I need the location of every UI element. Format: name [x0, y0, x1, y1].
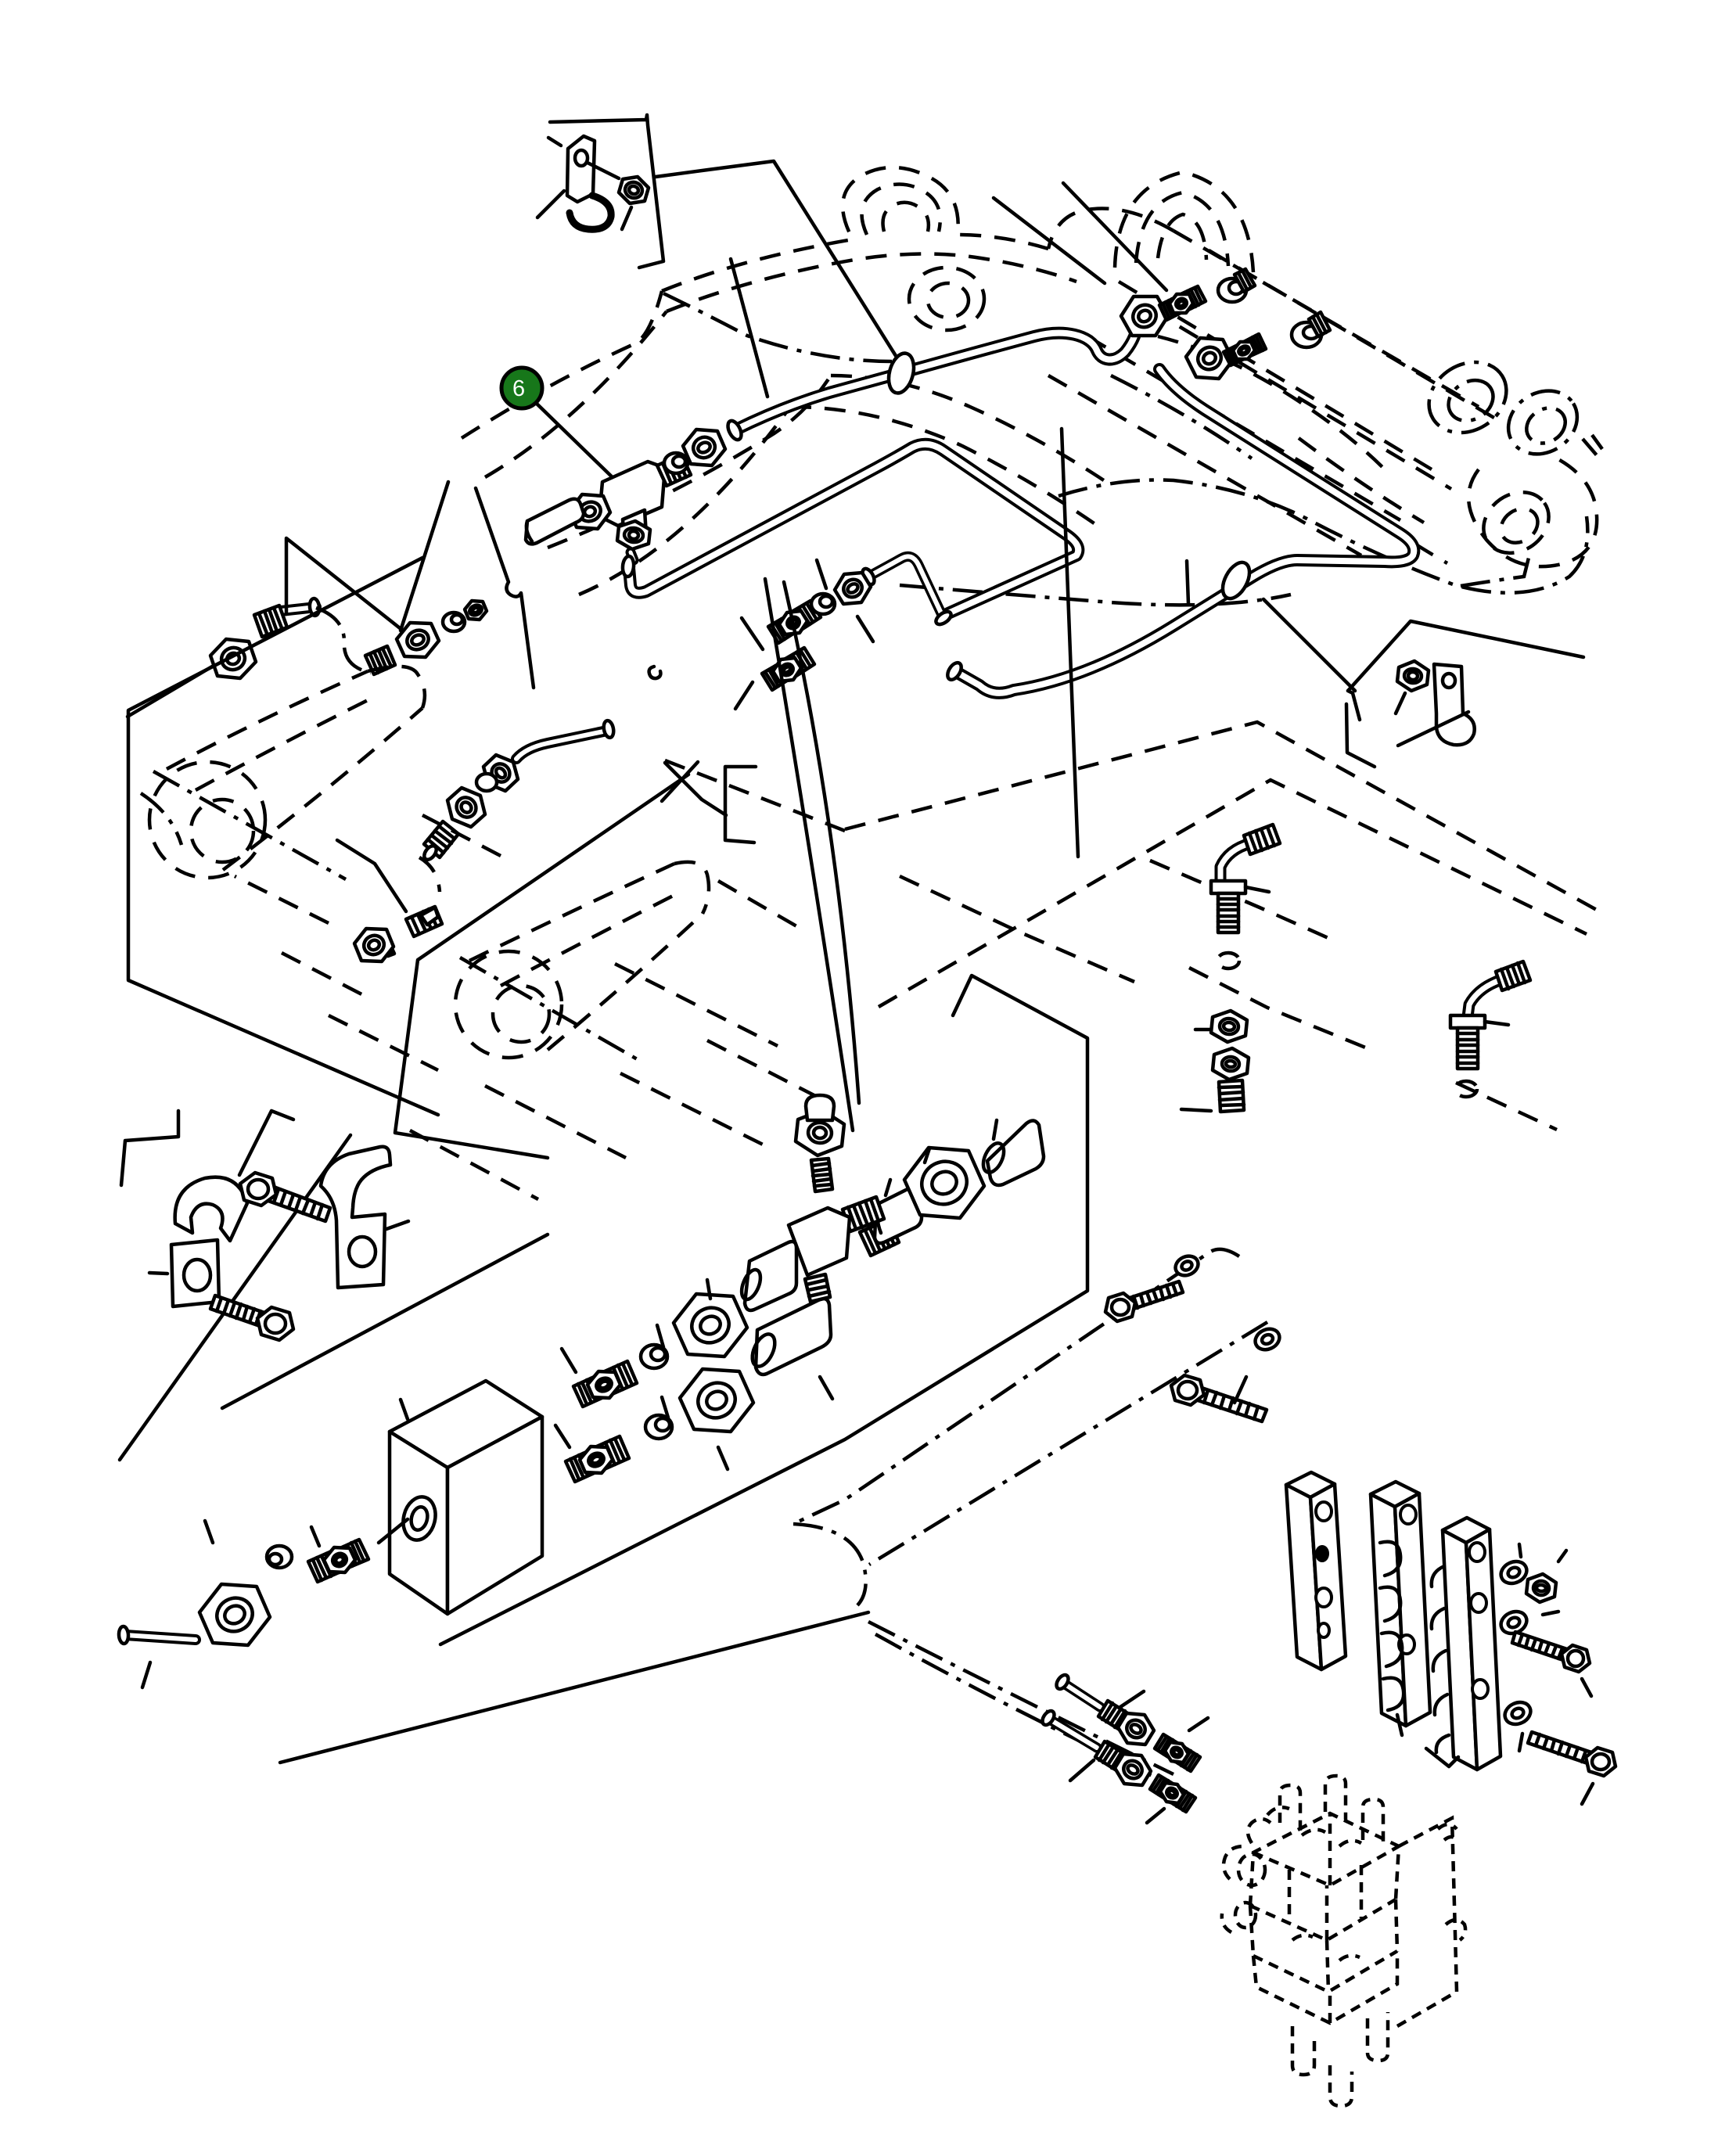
svg-text:6: 6 [512, 376, 525, 401]
